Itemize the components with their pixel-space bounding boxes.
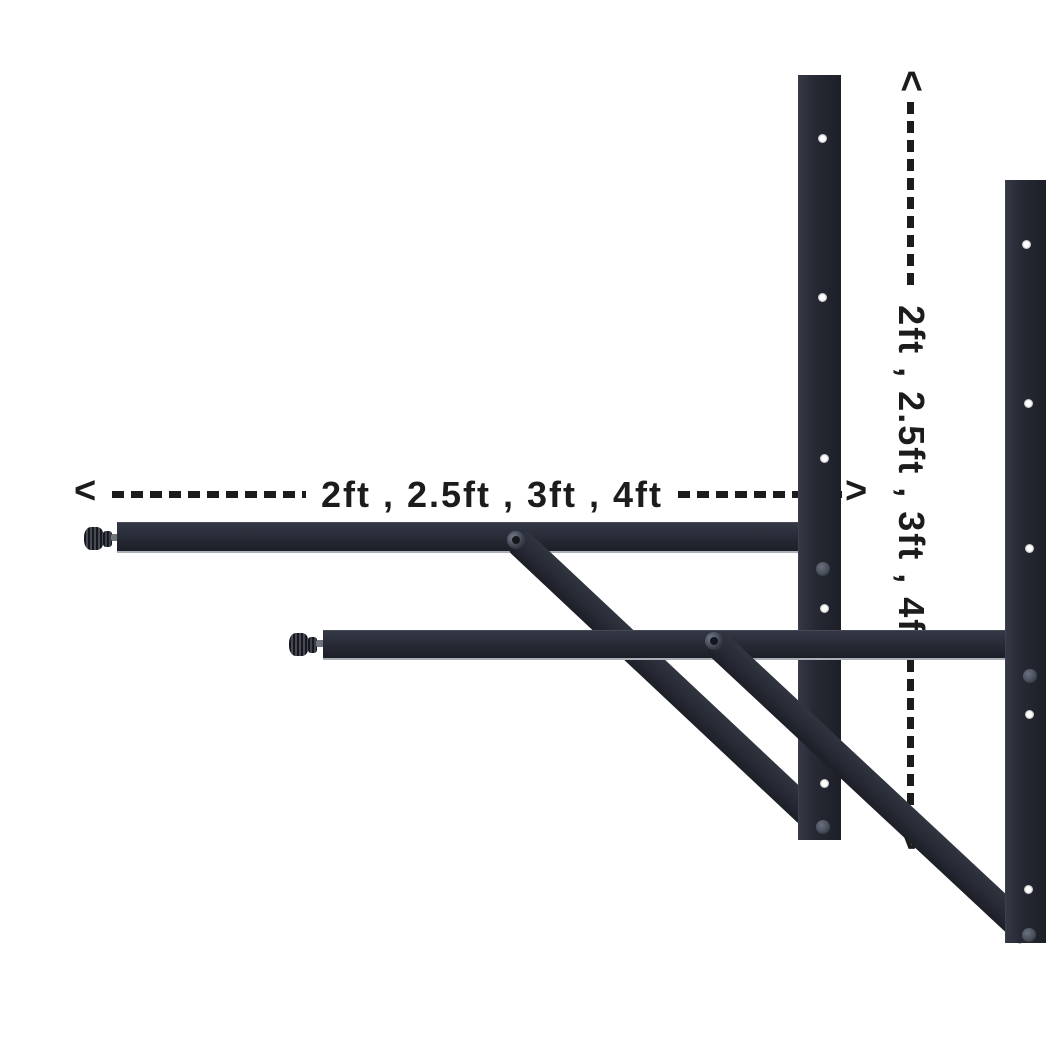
mounting-hole <box>1024 885 1033 894</box>
mounting-hole <box>1022 240 1031 249</box>
wall-mount-bar <box>1005 180 1046 943</box>
rivet <box>1022 928 1036 942</box>
horizontal-arm <box>323 630 1008 660</box>
rivet <box>1023 669 1037 683</box>
mounting-hole <box>1024 399 1033 408</box>
mounting-hole <box>1025 544 1034 553</box>
bracket-front <box>0 0 1051 1052</box>
mounting-hole <box>1025 710 1034 719</box>
adjustment-knob <box>289 633 309 656</box>
diagonal-brace <box>705 632 1039 946</box>
pivot-bolt <box>705 632 723 650</box>
product-image: < 2ft , 2.5ft , 3ft , 4ft > < 2ft , 2.5f… <box>0 0 1051 1052</box>
